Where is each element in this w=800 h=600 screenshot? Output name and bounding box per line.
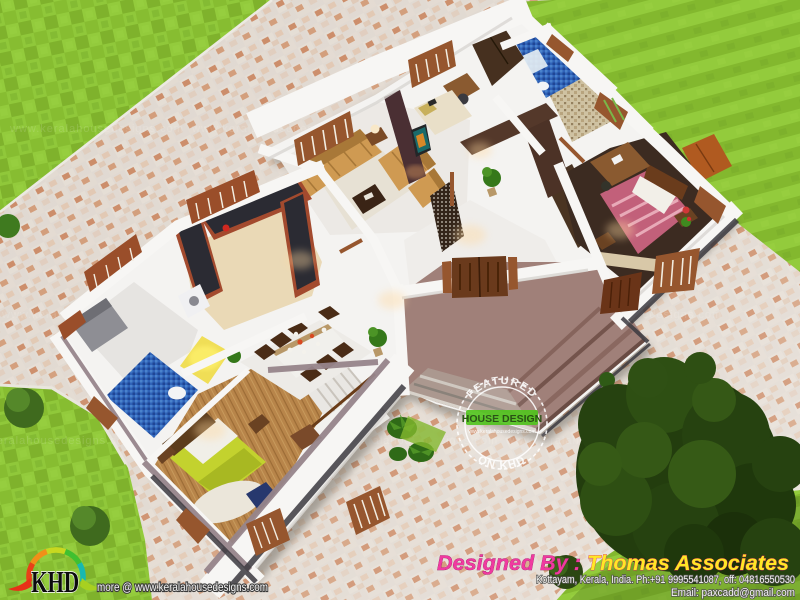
svg-text:Designed By : Thomas Associate: Designed By : Thomas Associates [437, 552, 789, 575]
svg-text:www.keralahousedesigns.com: www.keralahousedesigns.com [468, 429, 535, 435]
svg-text:more @ www.keralahousedesigns.: more @ www.keralahousedesigns.com [97, 580, 268, 594]
svg-text:KHD: KHD [31, 564, 79, 599]
svg-text:Kottayam, Kerala, India. Ph:+: Kottayam, Kerala, India. Ph:+91 99955410… [536, 574, 795, 586]
svg-text:Email: paxcadd@gmail.com: Email: paxcadd@gmail.com [671, 587, 795, 599]
svg-text:HOUSE DESIGN: HOUSE DESIGN [462, 413, 543, 425]
